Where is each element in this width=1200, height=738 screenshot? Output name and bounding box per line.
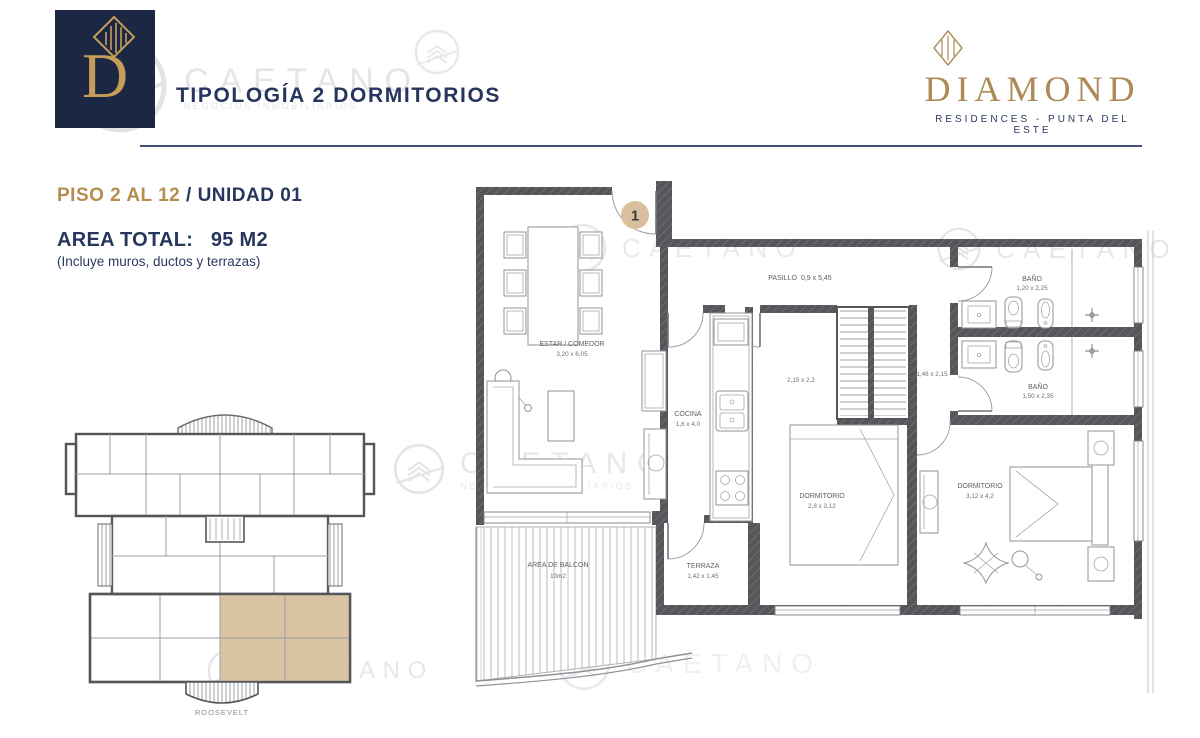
room-dims-balcon: 10m2 — [550, 573, 566, 580]
closets — [837, 307, 909, 419]
header-divider — [140, 145, 1142, 147]
room-label-banio1: BAÑO — [1022, 274, 1042, 283]
key-plan-building — [66, 415, 374, 703]
room-label-estar: ESTAR / COMEDOR — [539, 341, 604, 348]
area-note: (Incluye muros, ductos y terrazas) — [57, 254, 302, 269]
unit-label: UNIDAD 01 — [198, 185, 303, 206]
brand-logo: DIAMOND RESIDENCES - PUNTA DEL ESTE — [915, 30, 1150, 136]
separator: / — [186, 185, 192, 206]
entrance-number: 1 — [631, 208, 639, 225]
boundary-line — [1148, 231, 1153, 693]
page-title: TIPOLOGÍA 2 DORMITORIOS — [176, 84, 501, 108]
room-dims-dormitorio2: 3,12 x 4,2 — [966, 493, 994, 500]
room-dims-banio1: 1,20 x 2,25 — [1016, 285, 1048, 292]
room-label-dormitorio2: DORMITORIO — [957, 483, 1003, 490]
room-label-banio2: BAÑO — [1028, 382, 1048, 391]
caetano-watermark-icon — [392, 442, 446, 496]
room-label-dormitorio1: DORMITORIO — [799, 493, 845, 500]
room-dims-hall: 1,46 x 2,15 — [916, 371, 948, 378]
caetano-watermark — [413, 28, 461, 76]
diamond-icon — [933, 30, 963, 66]
key-plan-street-label: ROOSEVELT — [195, 708, 249, 717]
key-plan-canopy — [186, 682, 258, 703]
room-dims-cocina: 1,6 x 4,0 — [676, 421, 701, 428]
entrance-badge: 1 — [621, 201, 649, 229]
area-total-value: 95 M2 — [211, 229, 268, 251]
room-dims-dormitorio1: 2,8 x 3,12 — [808, 503, 836, 510]
room-dims-terraza: 1,42 x 1,45 — [687, 573, 719, 580]
room-label-terraza: TERRAZA — [687, 563, 720, 570]
area-total-label: AREA TOTAL: — [57, 229, 193, 251]
company-logo: D — [55, 10, 155, 128]
room-label-balcon: AREA DE BALCON — [527, 562, 588, 569]
floor-range-label: PISO 2 AL 12 — [57, 185, 180, 206]
flyer-page: CAETANO NEGOCIOS INMOBILIARIOS CAETANO C… — [0, 0, 1200, 738]
room-dims-banio2: 1,50 x 2,35 — [1022, 393, 1054, 400]
bedroom2-furniture — [920, 431, 1114, 583]
living-furniture — [487, 227, 666, 499]
room-dims-vestidor: 2,15 x 2,2 — [787, 377, 815, 384]
brand-name: DIAMOND — [915, 68, 1150, 110]
room-dims-estar: 3,20 x 6,05 — [556, 351, 588, 358]
brand-subtitle: RESIDENCES - PUNTA DEL ESTE — [915, 114, 1150, 136]
area-total-line: AREA TOTAL: 95 M2 — [57, 229, 302, 252]
main-floorplan: 1 ESTAR / COMEDOR 3,20 x 6,05 PASILLO0,9… — [460, 175, 1160, 695]
unit-info: PISO 2 AL 12 / UNIDAD 01 AREA TOTAL: 95 … — [57, 185, 302, 269]
room-label-cocina: COCINA — [674, 411, 702, 418]
company-logo-letter: D — [55, 44, 155, 108]
key-plan: ROOSEVELT — [60, 388, 380, 720]
caetano-watermark-icon — [413, 28, 461, 76]
floor-unit-line: PISO 2 AL 12 / UNIDAD 01 — [57, 185, 302, 207]
room-label-pasillo: PASILLO0,9 x 5,45 — [768, 275, 832, 282]
